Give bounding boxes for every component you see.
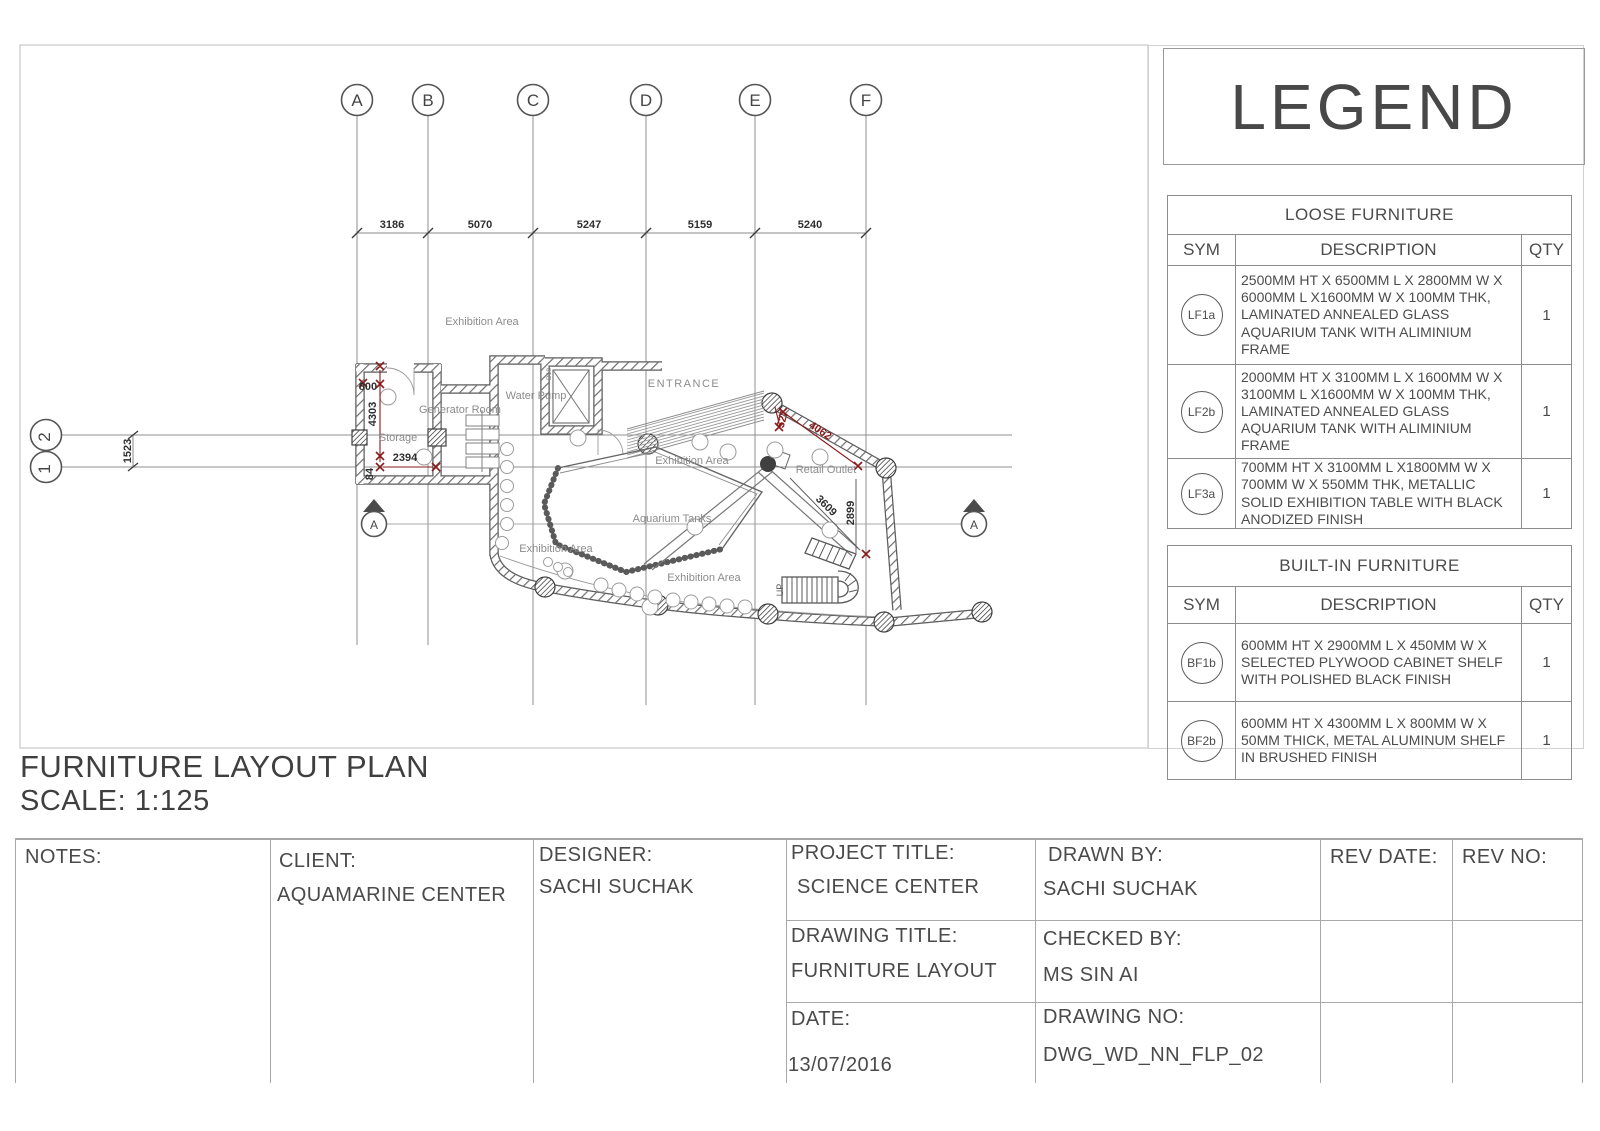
table-row: LF2b 2000MM HT X 3100MM L X 1600MM W X 3… [1168,364,1571,458]
row-description: 600MM HT X 4300MM L X 800MM W X 50MM THI… [1236,712,1521,769]
dim-storage-width: 2394 [393,452,418,464]
dim-e-f: 5240 [798,219,822,231]
col-header-description: DESCRIPTION [1236,587,1522,623]
designer-label: DESIGNER: [539,844,653,867]
table-row: BF2b 600MM HT X 4300MM L X 800MM W X 50M… [1168,701,1571,779]
table-row: BF1b 600MM HT X 2900MM L X 450MM W X SEL… [1168,623,1571,701]
label-exhibition-left: Exhibition Area [519,543,593,555]
wall-pilaster [352,430,367,445]
label-generator-room: Generator Room [419,404,501,416]
loose-furniture-title: LOOSE FURNITURE [1168,196,1571,234]
section-marker-right: A [970,518,978,532]
checked-by-label: CHECKED BY: [1043,928,1182,951]
client-label: CLIENT: [279,850,356,873]
label-water-pump: Water Pump [506,390,567,402]
table-row: LF3a 700MM HT X 3100MM L X1800MM W X 700… [1168,458,1571,528]
label-exhibition-top: Exhibition Area [445,316,519,328]
row-qty: 1 [1522,459,1571,528]
row-qty: 1 [1522,702,1571,779]
dim-storage-depth: 4303 [367,402,379,426]
rev-no-label: REV NO: [1462,846,1547,869]
dim-storage-door: 800 [359,381,377,393]
label-entrance: ENTRANCE [648,378,721,390]
built-in-furniture-table: BUILT-IN FURNITURE SYM DESCRIPTION QTY B… [1167,545,1572,780]
grid-bubble-f: F [861,91,871,110]
grid-bubble-2: 2 [35,432,54,441]
date-value: 13/07/2016 [788,1054,892,1077]
col-header-qty: QTY [1522,235,1571,265]
furniture-tags [380,389,838,615]
stair-up-label: UP [775,584,785,597]
wall-pilaster [428,429,446,446]
built-in-furniture-title: BUILT-IN FURNITURE [1168,546,1571,586]
notes-label: NOTES: [25,846,102,869]
grid-row-bubbles: 2 1 1523 [31,420,135,483]
loose-furniture-table: LOOSE FURNITURE SYM DESCRIPTION QTY LF1a… [1167,195,1572,529]
grid-column-bubbles: A B C D E F [342,85,882,116]
row-description: 2000MM HT X 3100MM L X 1600MM W X 3100MM… [1236,366,1521,457]
drawing-no-label: DRAWING NO: [1043,1006,1184,1029]
symbol-badge: LF1a [1181,294,1223,336]
col-header-description: DESCRIPTION [1236,235,1522,265]
drawing-no-value: DWG_WD_NN_FLP_02 [1043,1044,1264,1067]
col-header-qty: QTY [1522,587,1571,623]
dim-a-b: 3186 [380,219,404,231]
client-value: AQUAMARINE CENTER [277,884,506,907]
designer-value: SACHI SUCHAK [539,876,694,899]
row-qty: 1 [1522,624,1571,701]
grid-bubble-a: A [351,91,363,110]
symbol-badge: LF2b [1181,391,1223,433]
plan-labels: Exhibition Area ENTRANCE Water Pump Gene… [379,316,857,584]
plan-border [20,45,1148,748]
label-exhibition-bottom: Exhibition Area [667,572,741,584]
row-description: 2500MM HT X 6500MM L X 2800MM W X 6000MM… [1236,269,1521,360]
staircase: UP [775,538,858,603]
grid-bubble-e: E [749,91,760,110]
grid-bubble-d: D [640,91,652,110]
plan-node-dot [760,456,776,472]
row-qty: 1 [1522,365,1571,458]
grid-bubble-b: B [422,91,433,110]
label-storage: Storage [379,432,418,444]
symbol-badge: LF3a [1181,473,1223,515]
dim-retail-depth: 2899 [845,501,857,525]
dim-wall-offset: 84 [364,467,376,480]
row-qty: 1 [1522,266,1571,364]
rev-date-label: REV DATE: [1330,846,1438,869]
sheet-scale: SCALE: 1:125 [20,785,210,818]
row-description: 600MM HT X 2900MM L X 450MM W X SELECTED… [1236,634,1521,691]
project-title-value: SCIENCE CENTER [797,876,979,899]
row-description: 700MM HT X 3100MM L X1800MM W X 700MM W … [1236,456,1521,530]
drawing-title-value: FURNITURE LAYOUT [791,960,997,983]
symbol-badge: BF1b [1181,642,1223,684]
drawing-title-label: DRAWING TITLE: [791,925,958,948]
label-aquarium-tanks: Aquarium Tanks [633,513,712,525]
grid-bubble-1: 1 [35,464,54,473]
drawing-sheet: A B C D E F 2 1 1523 3186 5070 5247 5159… [0,0,1600,1131]
date-label: DATE: [791,1008,850,1031]
label-exhibition-mid: Exhibition Area [655,455,729,467]
dim-b-c: 5070 [468,219,492,231]
section-marker-left: A [370,518,378,532]
grid-bubble-c: C [527,91,539,110]
door-tag: D18 [546,368,553,380]
checked-by-value: MS SIN AI [1043,964,1139,987]
label-retail-outlet: Retail Outlet [796,464,857,476]
legend-title: LEGEND [1230,70,1517,144]
dim-d-e: 5159 [688,219,712,231]
project-title-label: PROJECT TITLE: [791,842,955,865]
dim-row-spacing: 1523 [122,439,134,463]
symbol-badge: BF2b [1181,720,1223,762]
col-header-sym: SYM [1168,235,1236,265]
legend-title-box: LEGEND [1163,48,1585,165]
table-row: LF1a 2500MM HT X 6500MM L X 2800MM W X 6… [1168,265,1571,364]
drawn-by-label: DRAWN BY: [1048,844,1163,867]
drawn-by-value: SACHI SUCHAK [1043,878,1198,901]
sheet-title: FURNITURE LAYOUT PLAN [20,749,429,785]
col-header-sym: SYM [1168,587,1236,623]
dim-c-d: 5247 [577,219,601,231]
